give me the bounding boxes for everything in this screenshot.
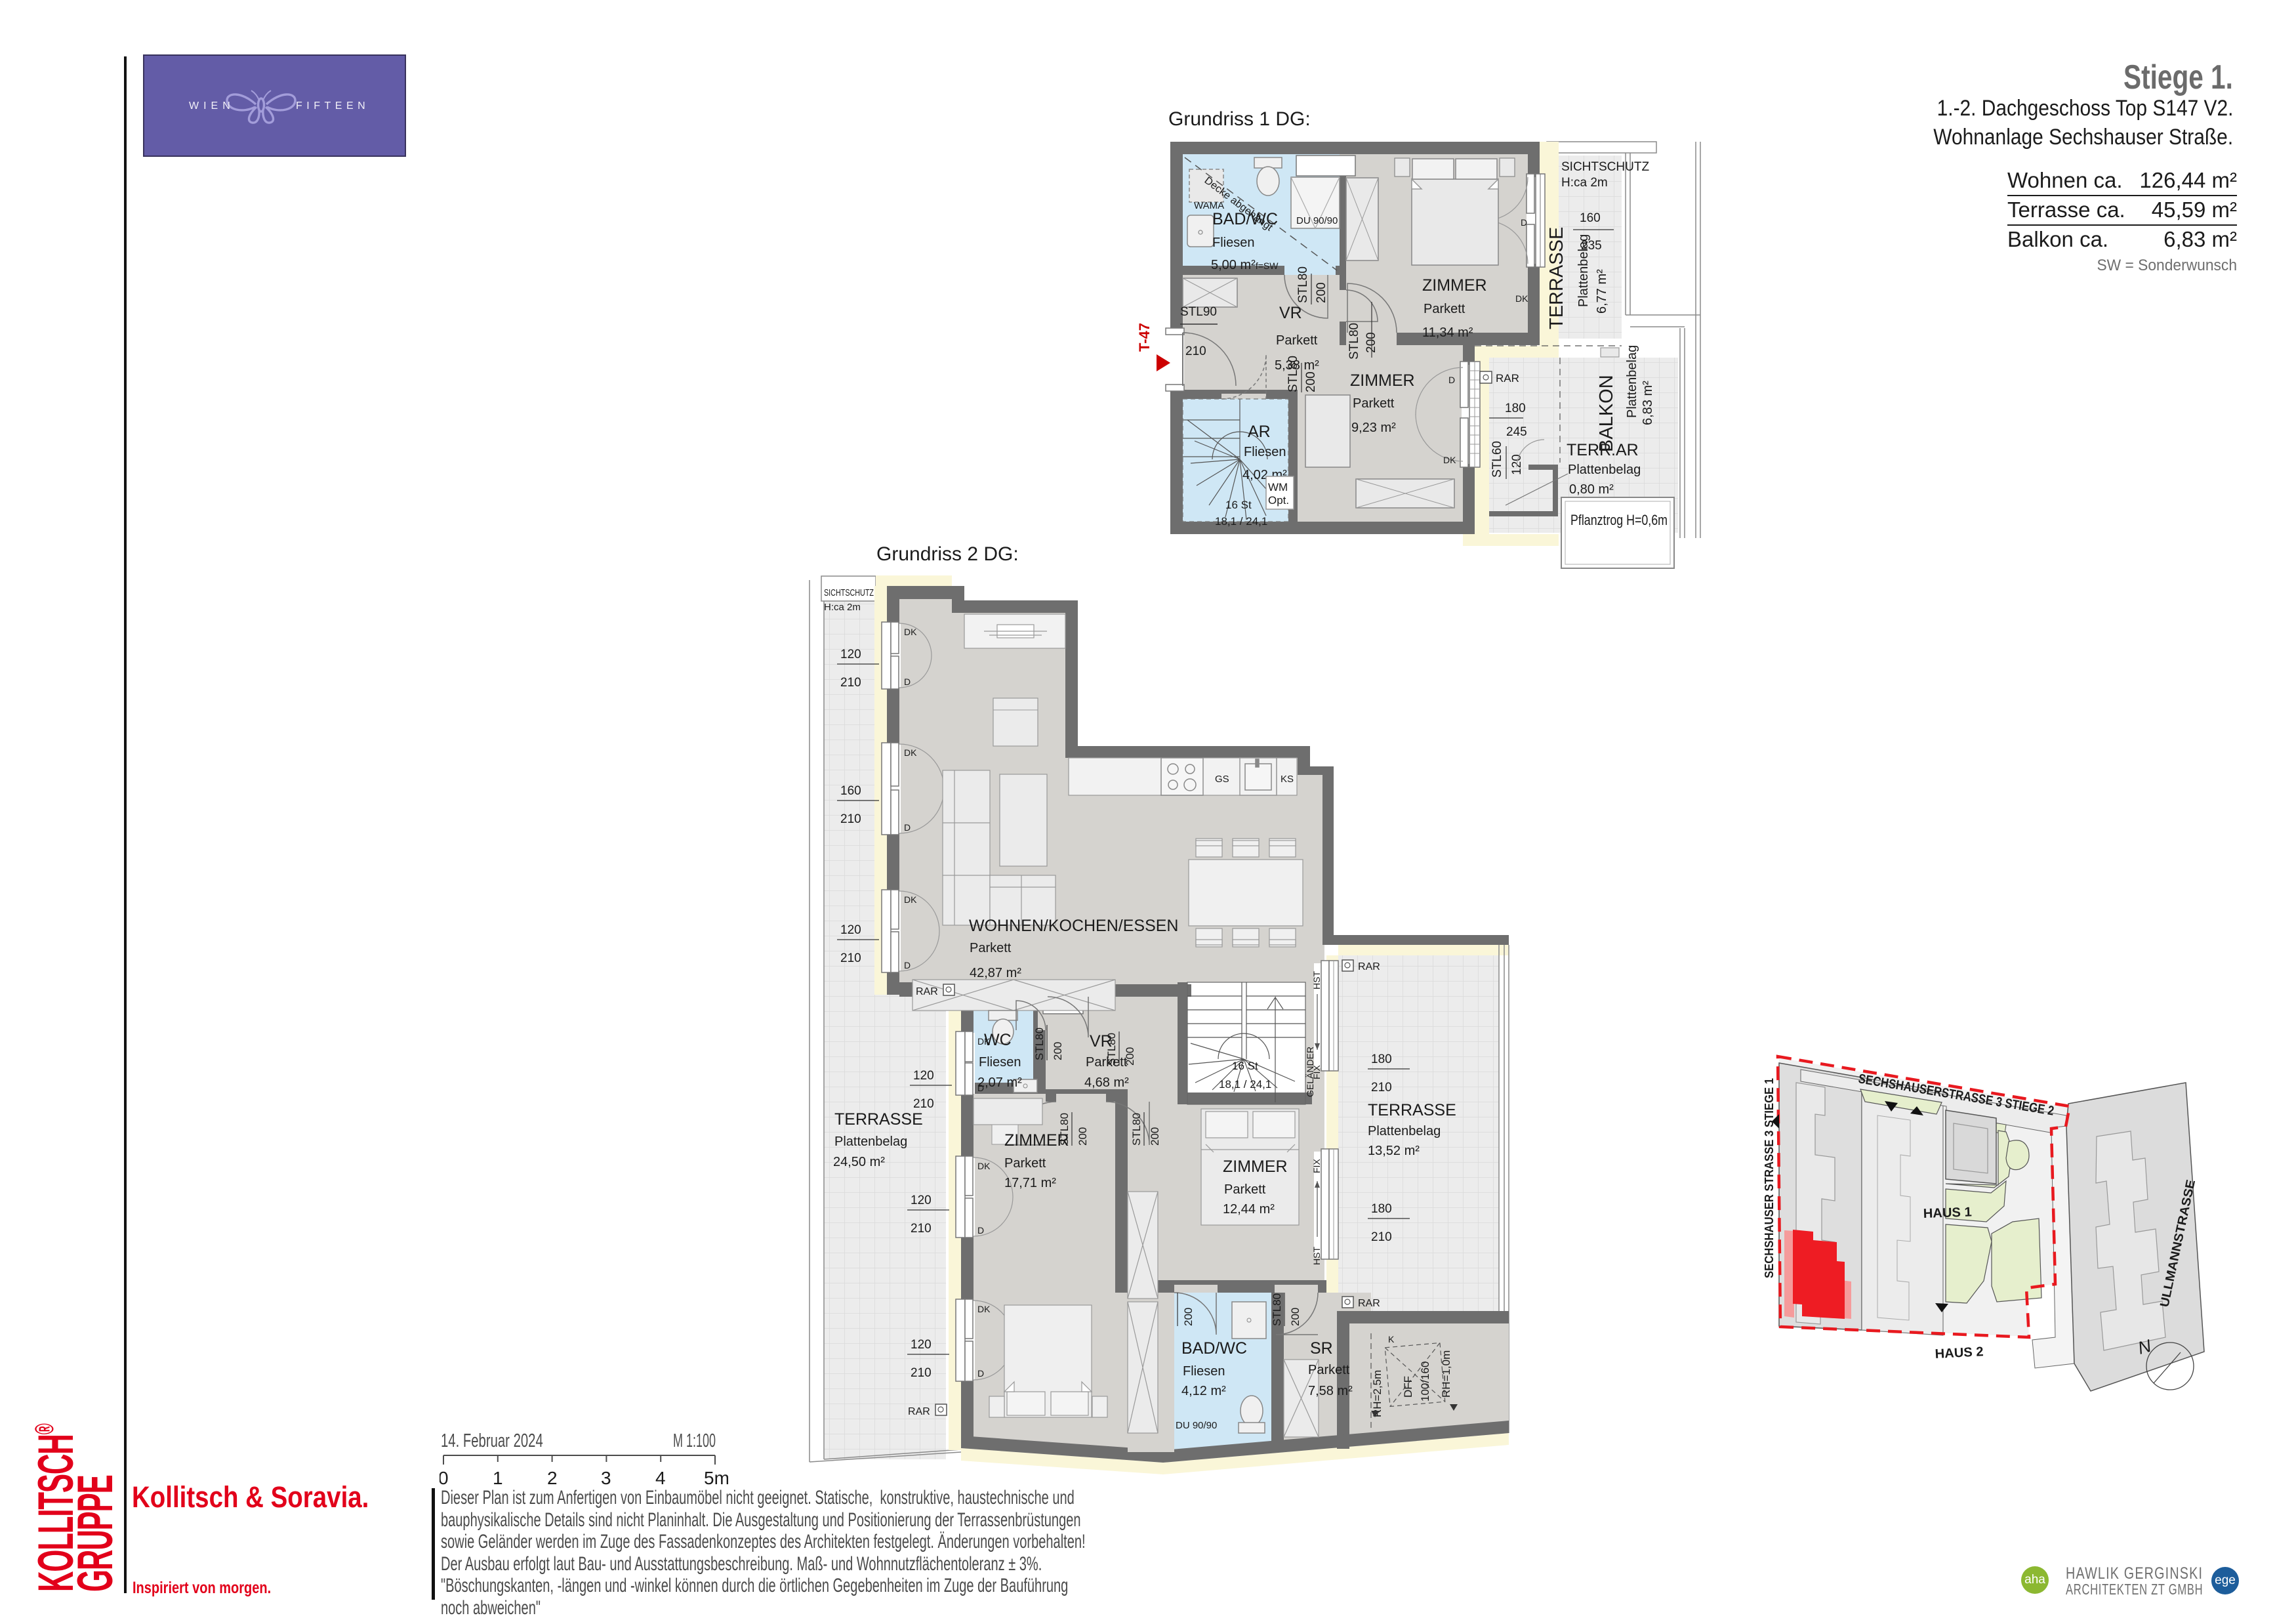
svg-text:D: D: [904, 960, 911, 970]
svg-text:200: 200: [1124, 1047, 1136, 1066]
svg-text:DK: DK: [904, 747, 917, 758]
svg-text:STL80: STL80: [1105, 1033, 1118, 1066]
svg-text:SICHTSCHUTZ: SICHTSCHUTZ: [824, 587, 874, 598]
svg-text:1: 1: [493, 1468, 503, 1488]
svg-text:120: 120: [840, 648, 861, 661]
svg-text:120: 120: [913, 1069, 934, 1083]
svg-text:11,34 m²: 11,34 m²: [1422, 325, 1473, 340]
svg-text:DU 90/90: DU 90/90: [1176, 1420, 1217, 1431]
svg-text:42,87 m²: 42,87 m²: [970, 966, 1021, 980]
svg-text:Plattenbelag: Plattenbelag: [834, 1135, 907, 1149]
svg-text:Fliesen: Fliesen: [1244, 445, 1286, 459]
svg-text:RAR: RAR: [916, 986, 938, 997]
svg-text:210: 210: [1371, 1230, 1392, 1244]
svg-text:4: 4: [655, 1468, 666, 1488]
svg-text:D: D: [1448, 375, 1455, 385]
svg-text:VR: VR: [1279, 304, 1302, 322]
svg-text:210: 210: [840, 812, 861, 826]
svg-text:RH=2,5m: RH=2,5m: [1371, 1370, 1384, 1417]
svg-text:TERR.AR: TERR.AR: [1567, 441, 1639, 459]
svg-text:FIX: FIX: [1311, 1159, 1322, 1173]
svg-text:200: 200: [1182, 1308, 1195, 1326]
svg-text:AR: AR: [1248, 423, 1271, 441]
svg-text:210: 210: [1185, 344, 1206, 358]
svg-text:245: 245: [1506, 425, 1527, 439]
svg-text:DK: DK: [904, 894, 917, 905]
svg-text:180: 180: [1505, 402, 1526, 415]
svg-text:BAD/WC: BAD/WC: [1212, 210, 1278, 228]
svg-text:TERRASSE: TERRASSE: [1368, 1101, 1456, 1119]
svg-text:Parkett: Parkett: [1308, 1363, 1350, 1377]
svg-text:Pflanztrog H=0,6m: Pflanztrog H=0,6m: [1570, 512, 1668, 528]
svg-text:17,71 m²: 17,71 m²: [1004, 1176, 1056, 1190]
svg-text:Plattenbelag: Plattenbelag: [1625, 345, 1639, 418]
svg-text:DK: DK: [1443, 455, 1456, 465]
svg-text:Plattenbelag: Plattenbelag: [1568, 463, 1641, 477]
svg-text:200: 200: [1315, 282, 1328, 303]
svg-text:5m: 5m: [704, 1468, 728, 1488]
svg-text:DK: DK: [904, 627, 917, 637]
svg-text:120: 120: [911, 1194, 932, 1207]
svg-text:210: 210: [1371, 1081, 1392, 1094]
svg-text:180: 180: [1371, 1052, 1392, 1066]
svg-text:Opt.: Opt.: [1268, 494, 1289, 507]
svg-text:RAR: RAR: [1358, 1298, 1380, 1309]
svg-text:Parkett: Parkett: [1004, 1156, 1046, 1171]
svg-text:100/160: 100/160: [1419, 1362, 1431, 1402]
svg-text:HAUS 2: HAUS 2: [1935, 1344, 1984, 1362]
svg-text:DU 90/90: DU 90/90: [1296, 215, 1338, 226]
svg-text:ZIMMER: ZIMMER: [1422, 276, 1487, 295]
svg-text:Fliesen: Fliesen: [1212, 236, 1254, 250]
svg-text:DK: DK: [1515, 293, 1528, 304]
svg-text:HST: HST: [1311, 1247, 1322, 1265]
svg-text:9,23 m²: 9,23 m²: [1351, 421, 1396, 435]
svg-text:STL80: STL80: [1130, 1113, 1143, 1146]
svg-text:D: D: [904, 677, 911, 687]
svg-text:Plattenbelag: Plattenbelag: [1576, 234, 1591, 307]
svg-text:GS: GS: [1215, 774, 1229, 785]
svg-text:SECHSHAUSER STRASSE 3 STIEGE 1: SECHSHAUSER STRASSE 3 STIEGE 1: [1765, 1078, 1776, 1278]
svg-text:200: 200: [1149, 1127, 1161, 1146]
svg-text:Parkett: Parkett: [1353, 396, 1395, 411]
svg-text:Parkett: Parkett: [1224, 1182, 1266, 1197]
svg-text:2: 2: [547, 1468, 558, 1488]
svg-text:13,52 m²: 13,52 m²: [1368, 1144, 1420, 1158]
svg-text:RAR: RAR: [1496, 372, 1519, 385]
svg-text:210: 210: [911, 1222, 932, 1236]
svg-text:DK: DK: [977, 1161, 991, 1171]
svg-text:D: D: [977, 1368, 984, 1379]
svg-text:WC: WC: [984, 1031, 1012, 1049]
svg-text:Parkett: Parkett: [1276, 333, 1318, 348]
svg-text:210: 210: [840, 951, 861, 965]
svg-text:200: 200: [1304, 371, 1318, 392]
svg-text:FIFTEEN: FIFTEEN: [296, 100, 369, 112]
svg-text:STL80: STL80: [1347, 323, 1361, 360]
svg-text:16 St: 16 St: [1232, 1060, 1258, 1072]
svg-text:STL80: STL80: [1033, 1028, 1046, 1060]
svg-text:16 St: 16 St: [1225, 499, 1252, 511]
svg-text:160: 160: [840, 784, 861, 798]
svg-text:200: 200: [1052, 1042, 1064, 1060]
svg-text:0: 0: [440, 1468, 449, 1488]
svg-text:4,12 m²: 4,12 m²: [1181, 1384, 1226, 1398]
svg-text:HAUS 1: HAUS 1: [1923, 1205, 1972, 1221]
svg-text:ZIMMER: ZIMMER: [1350, 371, 1415, 390]
svg-text:210: 210: [911, 1366, 932, 1380]
svg-text:STL90: STL90: [1180, 305, 1217, 319]
svg-text:TERRASSE: TERRASSE: [834, 1110, 923, 1129]
svg-text:T-47: T-47: [1138, 323, 1153, 352]
svg-text:RH=1,0m: RH=1,0m: [1440, 1350, 1452, 1398]
svg-text:SR: SR: [1310, 1339, 1333, 1358]
svg-text:STL80: STL80: [1286, 356, 1300, 392]
svg-text:TERRASSE: TERRASSE: [1546, 227, 1567, 329]
svg-text:D: D: [977, 1225, 984, 1236]
svg-text:24,50 m²: 24,50 m²: [833, 1155, 885, 1169]
svg-text:180: 180: [1371, 1202, 1392, 1216]
svg-text:6,83 m²: 6,83 m²: [1641, 381, 1655, 425]
svg-text:6,77 m²: 6,77 m²: [1595, 269, 1609, 314]
svg-text:ZIMMER: ZIMMER: [1223, 1157, 1288, 1176]
svg-text:18,1 / 24,1: 18,1 / 24,1: [1219, 1078, 1271, 1091]
svg-text:7,58 m²: 7,58 m²: [1308, 1384, 1353, 1398]
svg-text:Plattenbelag: Plattenbelag: [1368, 1124, 1441, 1138]
svg-text:120: 120: [911, 1338, 932, 1352]
svg-text:K: K: [1388, 1334, 1395, 1344]
svg-text:WOHNEN/KOCHEN/ESSEN: WOHNEN/KOCHEN/ESSEN: [969, 917, 1178, 935]
svg-text:Parkett: Parkett: [970, 941, 1012, 955]
svg-text:200: 200: [1076, 1127, 1089, 1146]
svg-text:STL80: STL80: [1271, 1293, 1283, 1326]
svg-text:120: 120: [840, 923, 861, 937]
svg-text:160: 160: [1580, 211, 1601, 225]
svg-text:STL60: STL60: [1490, 441, 1504, 478]
svg-text:5,00 m²f=SW: 5,00 m²f=SW: [1211, 258, 1279, 272]
svg-text:DFF: DFF: [1402, 1376, 1414, 1398]
svg-text:BAD/WC: BAD/WC: [1181, 1339, 1247, 1358]
svg-text:ZIMMER: ZIMMER: [1004, 1131, 1069, 1150]
svg-text:HST: HST: [1311, 971, 1322, 989]
svg-text:D: D: [904, 822, 911, 833]
svg-text:WM: WM: [1268, 481, 1288, 493]
svg-text:200: 200: [1289, 1308, 1302, 1326]
svg-text:RAR: RAR: [908, 1406, 930, 1417]
svg-text:4,68 m²: 4,68 m²: [1084, 1075, 1129, 1090]
svg-text:18,1 / 24,1: 18,1 / 24,1: [1215, 515, 1267, 528]
svg-text:H:ca 2m: H:ca 2m: [1561, 176, 1608, 190]
svg-text:D: D: [1521, 217, 1527, 228]
svg-text:GELÄNDER: GELÄNDER: [1305, 1047, 1315, 1097]
svg-text:H:ca 2m: H:ca 2m: [824, 602, 861, 613]
svg-text:Parkett: Parkett: [1424, 302, 1466, 316]
svg-text:STL80: STL80: [1296, 266, 1310, 303]
svg-text:0,80 m²: 0,80 m²: [1569, 482, 1614, 497]
svg-text:210: 210: [840, 676, 861, 690]
svg-text:SICHTSCHUTZ: SICHTSCHUTZ: [1561, 160, 1649, 174]
svg-text:12,44 m²: 12,44 m²: [1223, 1202, 1275, 1217]
svg-text:2,07 m²: 2,07 m²: [977, 1075, 1022, 1090]
svg-text:RAR: RAR: [1358, 961, 1380, 972]
svg-text:KS: KS: [1281, 774, 1294, 785]
svg-text:3: 3: [601, 1468, 611, 1488]
svg-text:Fliesen: Fliesen: [979, 1055, 1021, 1070]
svg-text:DK: DK: [977, 1304, 991, 1314]
svg-text:WIEN: WIEN: [189, 100, 235, 112]
svg-text:Fliesen: Fliesen: [1183, 1364, 1225, 1379]
svg-text:210: 210: [913, 1097, 934, 1111]
